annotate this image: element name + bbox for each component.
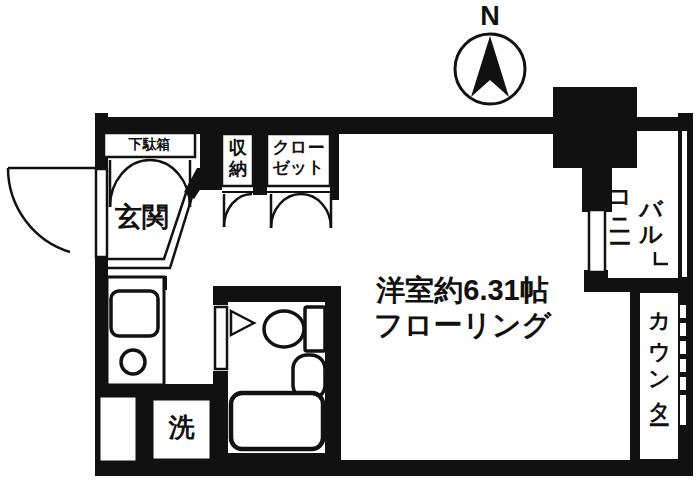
shoe-door-arc-icon bbox=[110, 160, 150, 207]
wall-counter bbox=[630, 290, 639, 462]
counter-label: カウンター bbox=[647, 297, 672, 417]
wall-closet-stub bbox=[330, 133, 339, 200]
balcony-railing-gap bbox=[682, 131, 687, 277]
wall-balcony-bottom bbox=[584, 278, 693, 292]
storage-label: 収納 bbox=[224, 138, 252, 179]
window-tick bbox=[679, 354, 686, 359]
burner-icon bbox=[121, 350, 145, 374]
closet-label: クロー ゼット bbox=[267, 138, 330, 177]
bathroom-door-leaf bbox=[215, 307, 227, 369]
shoe-box-label: 下駄箱 bbox=[104, 136, 195, 152]
pillar bbox=[553, 87, 637, 168]
window-tick bbox=[679, 372, 686, 377]
washer-label: 洗 bbox=[151, 413, 212, 443]
compass-icon bbox=[455, 34, 525, 104]
window-tick bbox=[679, 336, 686, 341]
compass-north-label: N bbox=[472, 1, 508, 32]
closet-door-arc-icon bbox=[301, 194, 331, 228]
room-size-label: 洋室約6.31帖 bbox=[330, 274, 595, 307]
wall-top bbox=[95, 117, 553, 134]
bathtub-icon bbox=[231, 393, 323, 449]
closet-label-line1: クロー bbox=[267, 138, 330, 158]
refrigerator-space bbox=[99, 396, 137, 462]
wall-storage-divider bbox=[253, 133, 267, 195]
balcony-label-left-column: コニー bbox=[607, 175, 633, 234]
closet-label-line2: ゼット bbox=[267, 158, 330, 178]
floor-plan-drawing bbox=[0, 0, 700, 483]
balcony-window bbox=[589, 210, 605, 272]
window-tick bbox=[679, 318, 686, 323]
toilet-tank-icon bbox=[305, 307, 325, 351]
floor-plan: N 下駄箱 収納 クロー ゼット 玄関 洋室約6.31帖 フローリング 洗 バル… bbox=[0, 0, 700, 483]
entrance-door-arc-icon bbox=[8, 168, 70, 252]
balcony-label-right-column: バル bbox=[638, 182, 664, 240]
closet-door-arc-icon bbox=[271, 194, 301, 228]
kitchen-sink-icon bbox=[111, 291, 158, 336]
window-tick bbox=[679, 390, 686, 395]
room-floor-label: フローリング bbox=[330, 309, 595, 342]
toilet-icon bbox=[264, 311, 304, 347]
balcony-corner-mark bbox=[655, 252, 668, 264]
storage-door-arc-icon bbox=[224, 194, 252, 227]
entrance-label: 玄関 bbox=[104, 202, 180, 233]
